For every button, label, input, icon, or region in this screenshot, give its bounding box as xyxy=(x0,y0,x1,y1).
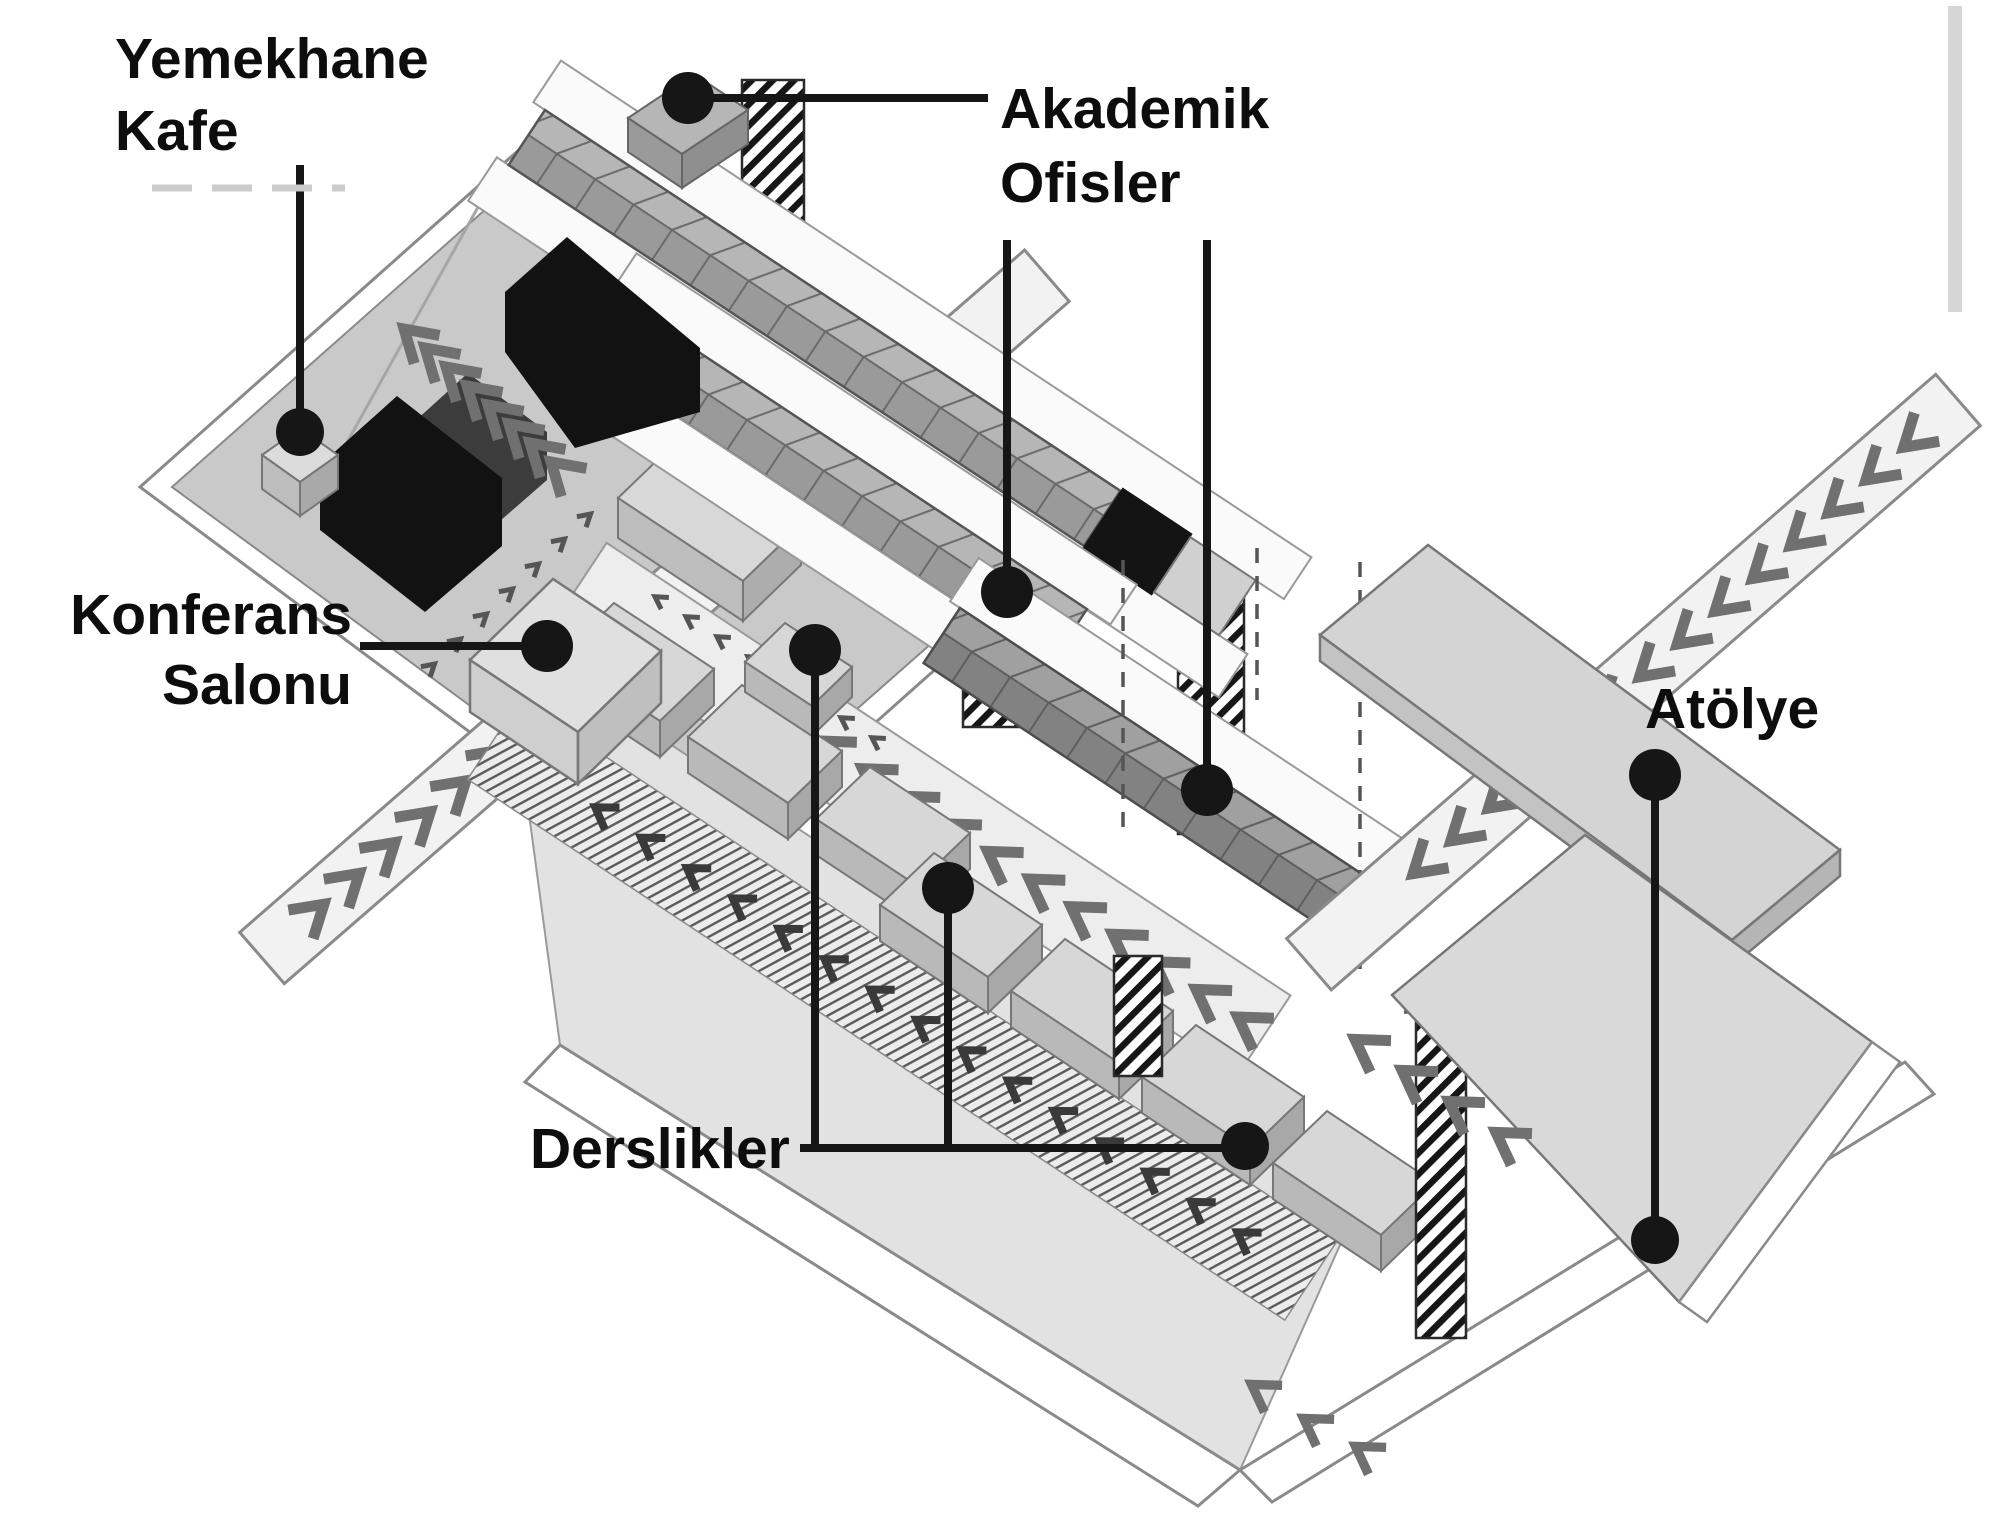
callout-dot-akademik-2 xyxy=(981,566,1033,618)
campus-axonometric-diagram: Yemekhane Kafe Akademik Ofisler Konferan… xyxy=(0,0,2000,1534)
page-edge-artifact xyxy=(1948,6,1962,312)
label-konferans-line1: Konferans xyxy=(70,583,352,647)
label-derslikler: Derslikler xyxy=(530,1117,790,1181)
callout-dot-akademik-3 xyxy=(1181,764,1233,816)
callout-dot-derslikler-3 xyxy=(1221,1122,1269,1170)
label-atolye: Atölye xyxy=(1645,677,1819,741)
hatched-core-4 xyxy=(1114,956,1162,1076)
diagram-canvas: Yemekhane Kafe Akademik Ofisler Konferan… xyxy=(0,0,2000,1534)
label-konferans-line2: Salonu xyxy=(162,653,352,717)
label-akademik-line2: Ofisler xyxy=(1000,151,1181,215)
label-yemekhane-line1: Yemekhane xyxy=(115,27,429,91)
callout-dot-akademik-1 xyxy=(662,72,714,124)
callout-dot-yemekhane xyxy=(276,408,324,456)
label-akademik-line1: Akademik xyxy=(1000,77,1270,141)
label-yemekhane-line2: Kafe xyxy=(115,99,239,163)
callout-dot-derslikler-1 xyxy=(789,624,841,676)
callout-dot-konferans xyxy=(521,620,573,672)
callout-dot-atolye-floor xyxy=(1631,1216,1679,1264)
callout-dot-derslikler-2 xyxy=(922,862,974,914)
callout-dot-atolye-roof xyxy=(1629,749,1681,801)
